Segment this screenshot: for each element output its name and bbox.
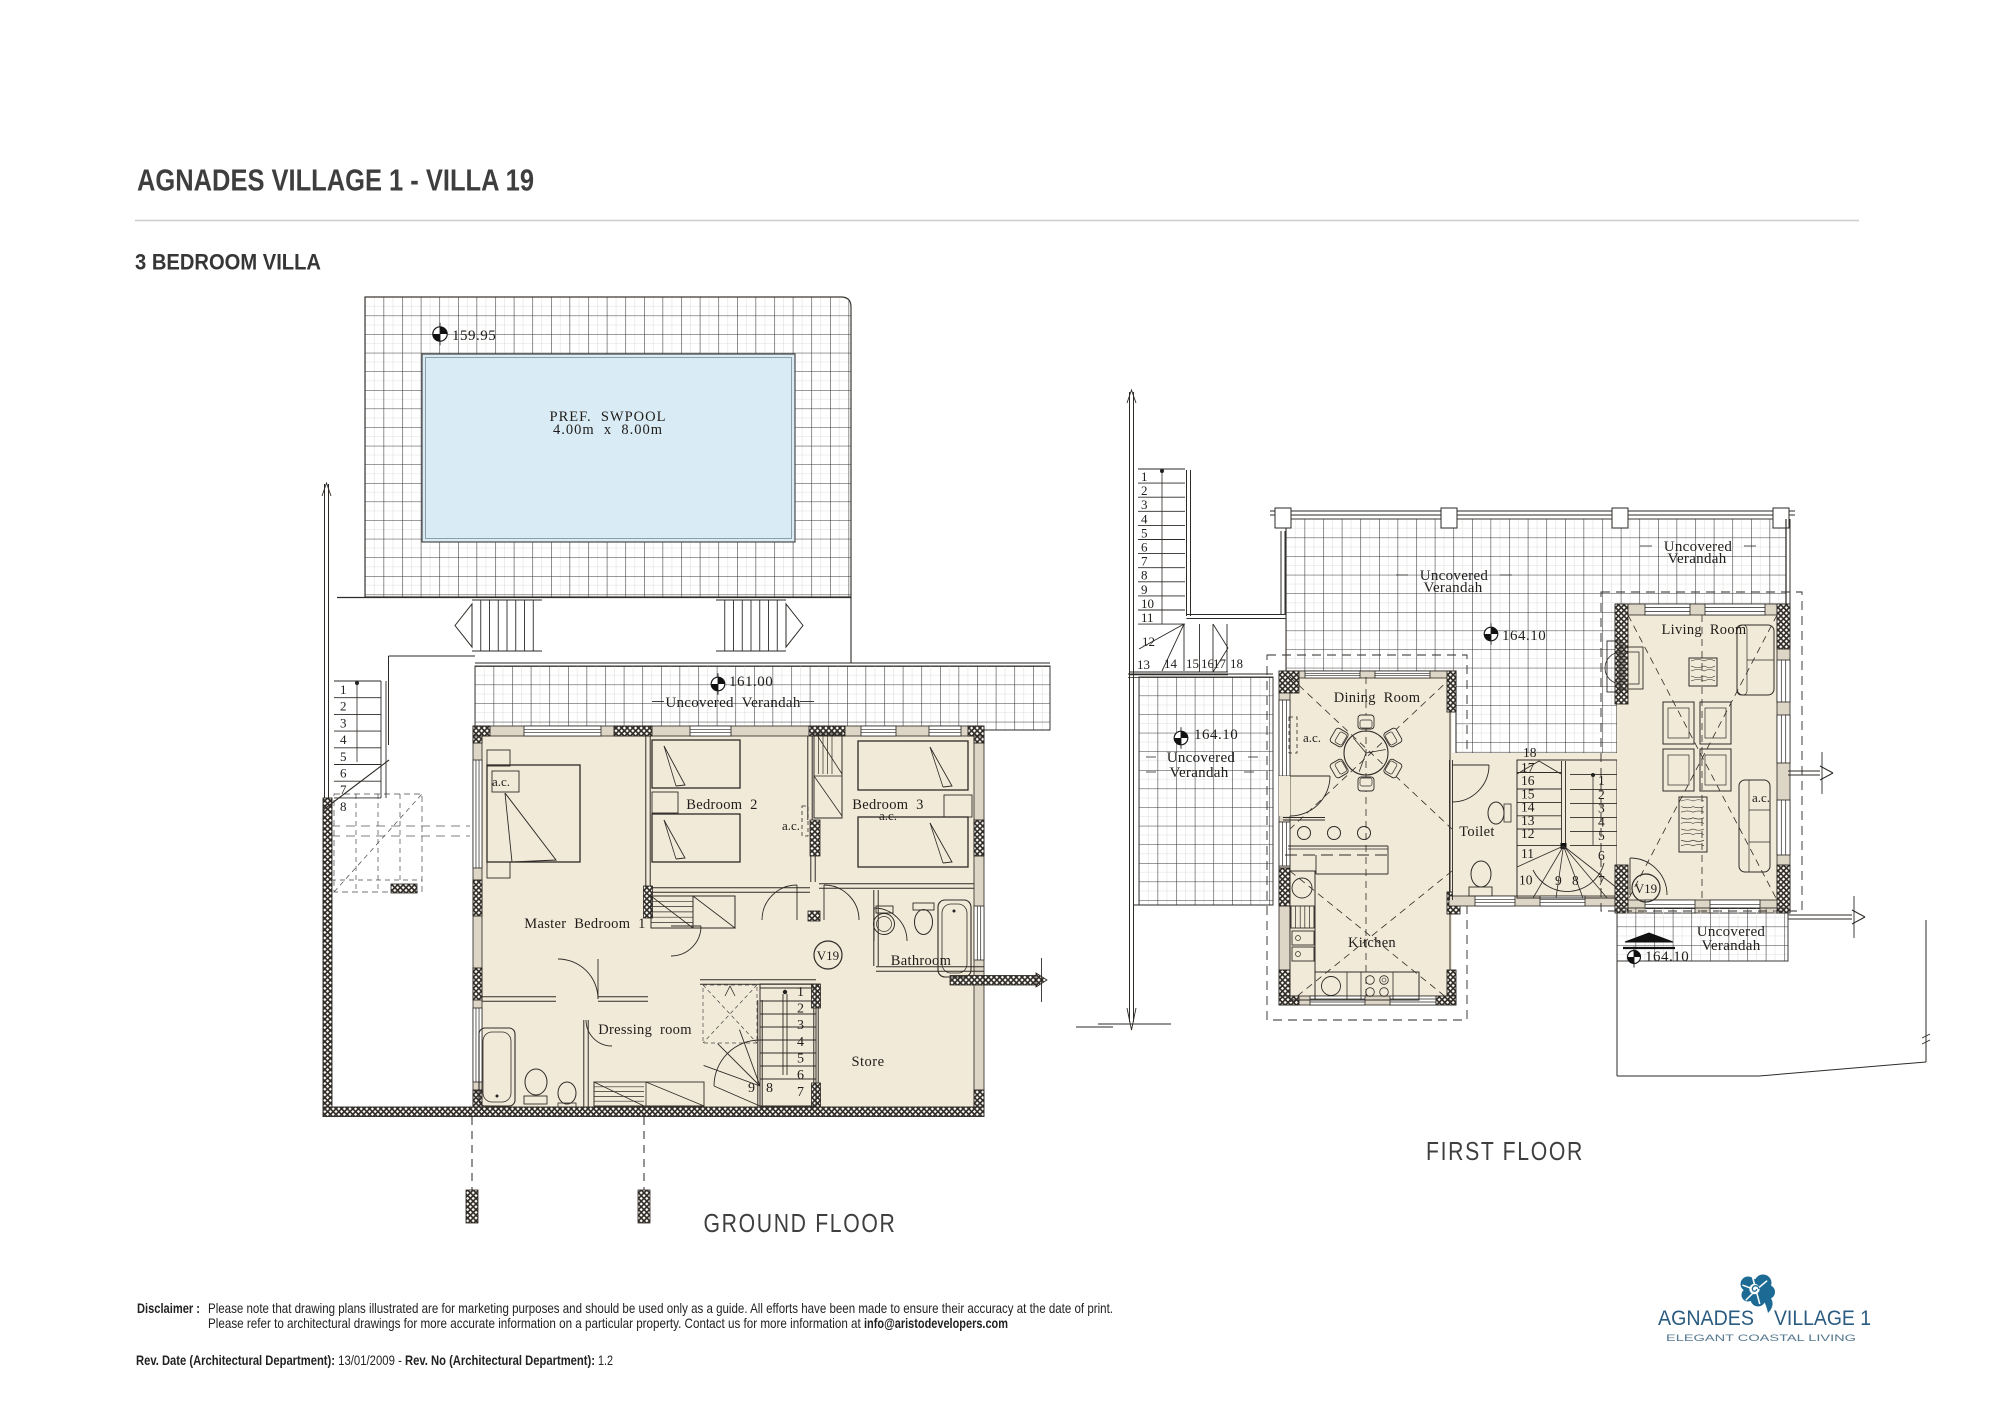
svg-text:5: 5 <box>797 1051 804 1066</box>
svg-text:17: 17 <box>1213 656 1227 671</box>
svg-text:4: 4 <box>797 1035 804 1050</box>
svg-text:6: 6 <box>1598 848 1605 863</box>
svg-text:Uncovered: Uncovered <box>1167 750 1236 766</box>
svg-text:ELEGANT COASTAL LIVING: ELEGANT COASTAL LIVING <box>1666 1333 1856 1344</box>
svg-text:GROUND FLOOR: GROUND FLOOR <box>704 1210 897 1238</box>
svg-text:4: 4 <box>1598 814 1605 829</box>
svg-text:3 BEDROOM VILLA: 3 BEDROOM VILLA <box>135 250 321 275</box>
svg-text:8: 8 <box>340 799 347 814</box>
svg-text:5: 5 <box>340 749 347 764</box>
svg-text:V19: V19 <box>1635 881 1657 896</box>
svg-text:6: 6 <box>797 1068 804 1083</box>
svg-text:18: 18 <box>1230 656 1243 671</box>
svg-text:1: 1 <box>1141 469 1148 484</box>
svg-text:a.c.: a.c. <box>1303 730 1321 745</box>
svg-text:4.00m x 8.00m: 4.00m x 8.00m <box>553 422 663 438</box>
svg-text:Disclaimer :: Disclaimer : <box>137 1301 200 1316</box>
svg-text:a.c.: a.c. <box>782 818 800 833</box>
svg-text:V19: V19 <box>817 948 839 963</box>
svg-text:7: 7 <box>340 782 347 797</box>
svg-text:9: 9 <box>1141 582 1148 597</box>
svg-text:161.00: 161.00 <box>729 674 773 690</box>
svg-text:11: 11 <box>1521 846 1534 861</box>
svg-text:8: 8 <box>1572 873 1579 888</box>
svg-text:164.10: 164.10 <box>1502 628 1546 644</box>
svg-text:a.c.: a.c. <box>1752 790 1770 805</box>
svg-text:AGNADES VILLAGE 1 - VILLA 19: AGNADES VILLAGE 1 - VILLA 19 <box>137 163 534 198</box>
svg-text:Toilet: Toilet <box>1459 824 1494 840</box>
svg-text:9: 9 <box>1555 873 1562 888</box>
svg-text:4: 4 <box>340 732 347 747</box>
svg-text:159.95: 159.95 <box>452 328 496 344</box>
svg-text:3: 3 <box>340 715 347 730</box>
svg-text:FIRST FLOOR: FIRST FLOOR <box>1426 1138 1584 1166</box>
svg-text:164.10: 164.10 <box>1194 727 1238 743</box>
svg-text:Bathroom: Bathroom <box>891 953 952 969</box>
svg-text:2: 2 <box>340 699 347 714</box>
svg-text:a.c.: a.c. <box>492 774 510 789</box>
svg-text:Rev. Date (Architectural Depar: Rev. Date (Architectural Department): 13… <box>136 1353 613 1368</box>
svg-text:Verandah: Verandah <box>1667 551 1726 567</box>
svg-text:18: 18 <box>1523 745 1537 760</box>
svg-text:6: 6 <box>1141 540 1148 555</box>
svg-text:10: 10 <box>1141 596 1154 611</box>
svg-text:Verandah: Verandah <box>1169 765 1228 781</box>
svg-text:1: 1 <box>797 985 804 1000</box>
svg-text:7: 7 <box>1141 554 1148 569</box>
svg-text:9: 9 <box>748 1081 755 1096</box>
svg-text:13: 13 <box>1137 657 1150 672</box>
svg-text:VILLAGE 1: VILLAGE 1 <box>1774 1307 1871 1330</box>
svg-text:Please refer to architectural: Please refer to architectural drawings f… <box>208 1316 1008 1331</box>
svg-text:12: 12 <box>1521 826 1535 841</box>
svg-text:Dressing room: Dressing room <box>598 1022 692 1038</box>
svg-text:AGNADES: AGNADES <box>1658 1307 1754 1330</box>
svg-text:Verandah: Verandah <box>1423 580 1482 596</box>
svg-text:14: 14 <box>1164 656 1178 671</box>
svg-text:6: 6 <box>340 766 347 781</box>
svg-text:11: 11 <box>1141 610 1154 625</box>
svg-text:4: 4 <box>1141 511 1148 526</box>
svg-text:Dining Room: Dining Room <box>1334 690 1421 706</box>
svg-text:7: 7 <box>797 1085 804 1100</box>
svg-text:10: 10 <box>1519 873 1533 888</box>
svg-text:Verandah: Verandah <box>1701 938 1760 954</box>
svg-text:Uncovered Verandah: Uncovered Verandah <box>665 695 801 711</box>
svg-text:5: 5 <box>1141 525 1148 540</box>
svg-text:Living Room: Living Room <box>1662 622 1747 638</box>
svg-text:7: 7 <box>1598 873 1605 888</box>
svg-text:a.c.: a.c. <box>879 808 897 823</box>
svg-text:Bedroom 2: Bedroom 2 <box>686 797 757 813</box>
svg-text:8: 8 <box>766 1081 773 1096</box>
svg-text:5: 5 <box>1598 828 1605 843</box>
svg-text:Kitchen: Kitchen <box>1348 935 1396 951</box>
svg-text:3: 3 <box>797 1018 804 1033</box>
svg-text:15: 15 <box>1186 656 1199 671</box>
svg-text:2: 2 <box>797 1002 804 1017</box>
svg-text:Store: Store <box>851 1054 884 1070</box>
svg-text:3: 3 <box>1141 497 1148 512</box>
svg-text:1: 1 <box>340 682 347 697</box>
svg-text:Master Bedroom 1: Master Bedroom 1 <box>524 916 645 932</box>
svg-text:2: 2 <box>1141 483 1148 498</box>
svg-text:164.10: 164.10 <box>1645 949 1689 965</box>
svg-text:3: 3 <box>1598 801 1605 816</box>
svg-text:8: 8 <box>1141 568 1148 583</box>
svg-text:Please note that drawing plans: Please note that drawing plans illustrat… <box>208 1301 1113 1316</box>
